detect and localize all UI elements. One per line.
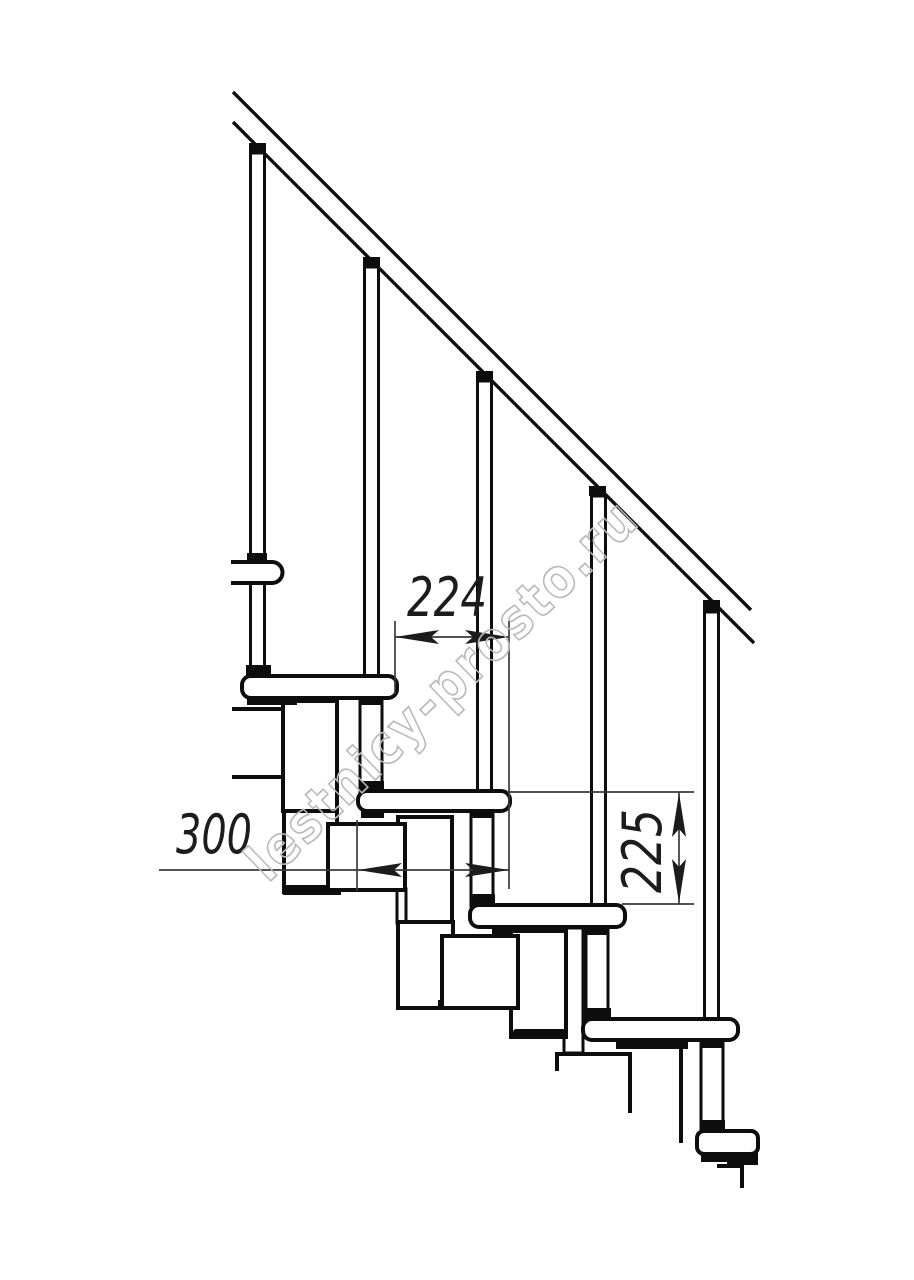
upper-handrail-stub <box>231 562 283 583</box>
cap-baluster-1 <box>249 143 266 153</box>
tread-5-bottom <box>697 1131 758 1154</box>
foot-baluster-3 <box>470 894 495 906</box>
tread-4 <box>583 1019 738 1040</box>
module-front-b <box>328 824 405 890</box>
foot-baluster-4 <box>586 1008 611 1020</box>
cap-baluster-5 <box>703 600 720 612</box>
baluster-5-sleeve <box>701 1039 723 1133</box>
baluster-1 <box>251 153 265 677</box>
tread-1 <box>242 676 397 698</box>
foot-baluster-5 <box>700 1120 725 1132</box>
foot-baluster-1 <box>246 665 271 677</box>
stair-technical-drawing: 224 300 225 lestnicy-prosto.ru <box>0 0 914 1280</box>
module-tall-c-base-plate <box>513 1029 566 1038</box>
module-neck-b <box>397 889 406 923</box>
tread-3 <box>470 905 625 927</box>
dimension-rise-label: 225 <box>611 809 674 893</box>
upper-handrail-connector <box>247 553 267 563</box>
baluster-4-sleeve <box>586 926 608 1021</box>
module-front-c <box>442 936 518 1008</box>
baluster-2 <box>365 267 379 682</box>
baluster-3-sleeve <box>471 809 493 906</box>
drawing-canvas: 224 300 225 lestnicy-prosto.ru <box>0 0 914 1280</box>
baluster-5 <box>705 612 719 1024</box>
tread-2 <box>358 791 510 811</box>
cap-baluster-2 <box>363 257 380 267</box>
cap-baluster-3 <box>476 371 493 381</box>
